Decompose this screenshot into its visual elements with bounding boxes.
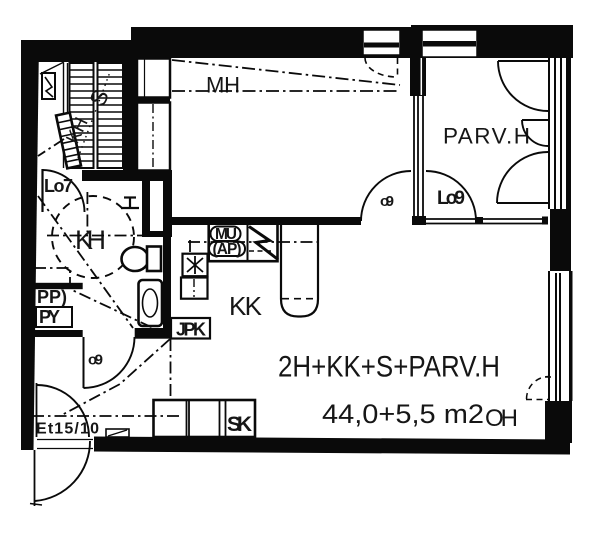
svg-text:KK: KK — [229, 291, 263, 321]
svg-text:PP): PP) — [37, 287, 67, 307]
svg-text:44,0+5,5 m2: 44,0+5,5 m2 — [322, 399, 484, 429]
svg-text:SK: SK — [227, 413, 252, 436]
svg-text:o9: o9 — [380, 193, 394, 210]
svg-text:o9: o9 — [88, 352, 103, 369]
svg-text:JPK: JPK — [176, 320, 206, 340]
svg-text:Lo7: Lo7 — [44, 176, 73, 196]
svg-text:PARV.H: PARV.H — [443, 124, 530, 149]
svg-text:2H+KK+S+PARV.H: 2H+KK+S+PARV.H — [278, 351, 500, 384]
svg-text:(AP): (AP) — [213, 241, 242, 258]
svg-text:PY: PY — [39, 307, 60, 327]
svg-text:KH: KH — [75, 225, 106, 255]
svg-text:OH: OH — [485, 405, 518, 432]
svg-text:Lo9: Lo9 — [437, 188, 465, 209]
svg-text:MH: MH — [206, 73, 240, 98]
